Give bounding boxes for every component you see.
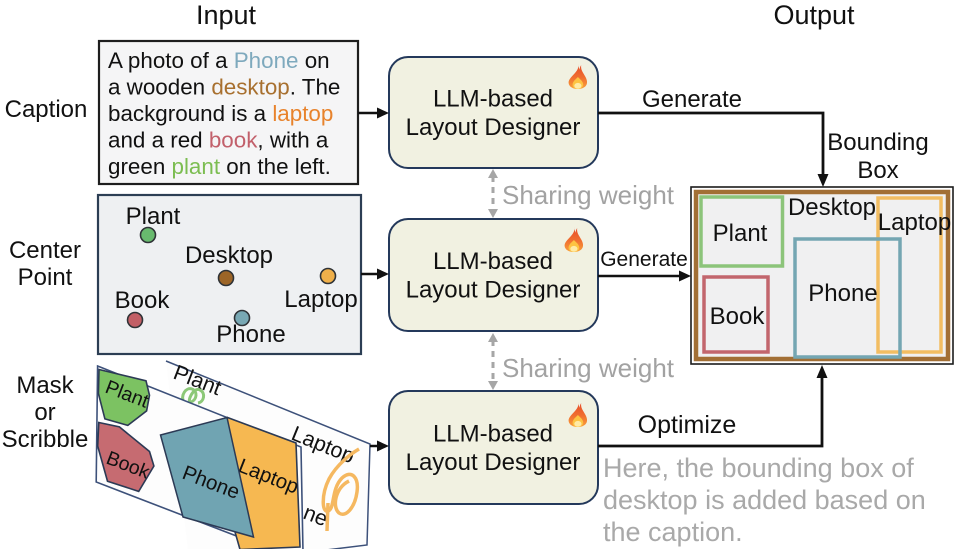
svg-text:A photo of a Phone on: A photo of a Phone on — [108, 48, 330, 73]
svg-text:or: or — [34, 399, 55, 426]
svg-text:background is a laptop: background is a laptop — [108, 101, 333, 126]
svg-text:Layout Designer: Layout Designer — [406, 114, 581, 141]
svg-text:Here, the bounding box of: Here, the bounding box of — [603, 453, 914, 483]
svg-text:Output: Output — [773, 0, 855, 30]
svg-text:desktop is added based on: desktop is added based on — [603, 485, 926, 515]
svg-text:Book: Book — [710, 303, 766, 330]
svg-text:Phone: Phone — [808, 280, 877, 307]
svg-text:the caption.: the caption. — [603, 517, 743, 547]
svg-text:LLM-based: LLM-based — [433, 248, 553, 275]
svg-text:Sharing weight: Sharing weight — [502, 180, 675, 210]
svg-text:a wooden desktop. The: a wooden desktop. The — [108, 75, 340, 100]
svg-text:LLM-based: LLM-based — [433, 421, 553, 448]
svg-text:Optimize: Optimize — [638, 411, 737, 439]
svg-text:Plant: Plant — [713, 220, 768, 247]
svg-text:Caption: Caption — [5, 96, 88, 123]
svg-text:Laptop: Laptop — [284, 286, 357, 313]
svg-text:Plant: Plant — [126, 203, 181, 230]
svg-text:Scribble: Scribble — [2, 426, 89, 453]
svg-text:Bounding: Bounding — [827, 129, 928, 156]
svg-text:Box: Box — [857, 157, 898, 184]
svg-text:Point: Point — [18, 264, 73, 291]
svg-text:Sharing weight: Sharing weight — [502, 353, 675, 383]
svg-text:Mask: Mask — [16, 372, 74, 399]
svg-text:Desktop: Desktop — [788, 194, 876, 221]
svg-text:Desktop: Desktop — [185, 242, 273, 269]
svg-text:Generate: Generate — [642, 86, 742, 113]
svg-text:Phone: Phone — [216, 321, 285, 348]
svg-text:Generate: Generate — [600, 248, 688, 271]
svg-text:Layout Designer: Layout Designer — [406, 449, 581, 476]
svg-text:green plant on the left.: green plant on the left. — [108, 154, 331, 179]
svg-text:Layout Designer: Layout Designer — [406, 277, 581, 304]
svg-text:Book: Book — [115, 287, 171, 314]
svg-text:and a red book, with a: and a red book, with a — [108, 128, 329, 153]
svg-text:Laptop: Laptop — [878, 209, 951, 236]
svg-text:Center: Center — [9, 237, 81, 264]
svg-text:LLM-based: LLM-based — [433, 86, 553, 113]
svg-text:Input: Input — [196, 0, 257, 30]
